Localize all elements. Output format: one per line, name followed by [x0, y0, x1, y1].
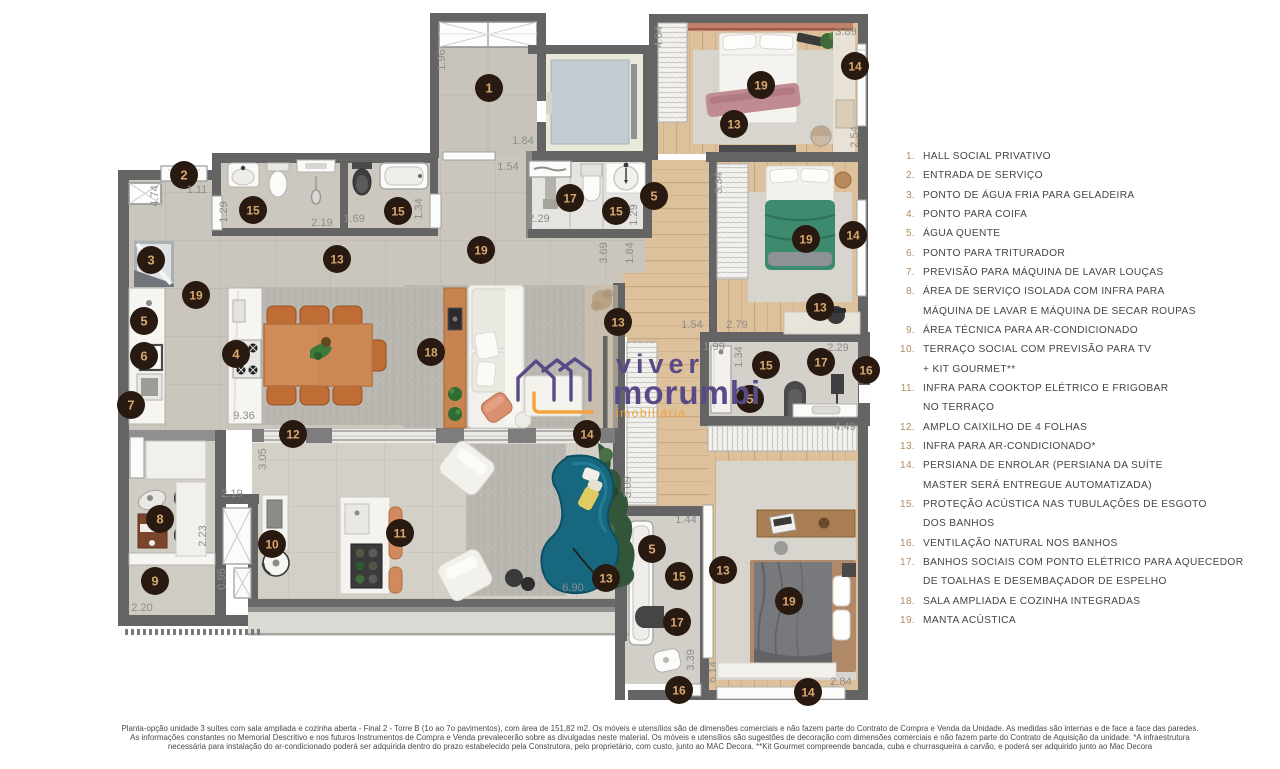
svg-text:15: 15 — [391, 205, 405, 219]
svg-text:14: 14 — [580, 428, 594, 442]
svg-text:1.34: 1.34 — [413, 198, 425, 219]
svg-text:19: 19 — [754, 79, 768, 93]
svg-text:2.19: 2.19 — [221, 488, 242, 500]
svg-text:8: 8 — [156, 512, 163, 527]
svg-text:2.19: 2.19 — [311, 217, 332, 229]
svg-text:2.23: 2.23 — [197, 525, 209, 546]
svg-text:9: 9 — [151, 574, 158, 589]
svg-text:4.49: 4.49 — [834, 421, 855, 433]
svg-text:1: 1 — [485, 81, 492, 96]
svg-text:19: 19 — [799, 233, 813, 247]
svg-text:4.04: 4.04 — [653, 26, 665, 47]
svg-text:19: 19 — [189, 289, 203, 303]
svg-text:13: 13 — [611, 316, 625, 330]
svg-text:3: 3 — [147, 253, 154, 268]
svg-text:6: 6 — [140, 349, 147, 364]
svg-text:3.39: 3.39 — [685, 649, 697, 670]
svg-text:1.34: 1.34 — [733, 346, 745, 367]
svg-text:5: 5 — [650, 189, 657, 204]
svg-text:10: 10 — [265, 538, 279, 552]
svg-text:1.29: 1.29 — [628, 204, 640, 225]
svg-text:0.95: 0.95 — [216, 568, 228, 589]
svg-text:3.89: 3.89 — [835, 26, 856, 38]
svg-text:2: 2 — [180, 168, 187, 183]
svg-text:17: 17 — [814, 356, 828, 370]
svg-text:15: 15 — [246, 204, 260, 218]
svg-text:17: 17 — [563, 192, 577, 206]
svg-text:19: 19 — [782, 595, 796, 609]
svg-text:13: 13 — [727, 118, 741, 132]
svg-text:15: 15 — [609, 205, 623, 219]
svg-text:18: 18 — [424, 346, 438, 360]
svg-text:1.54: 1.54 — [681, 319, 702, 331]
svg-text:1.84: 1.84 — [512, 135, 533, 147]
svg-text:5: 5 — [140, 314, 147, 329]
svg-text:13: 13 — [330, 253, 344, 267]
svg-text:4: 4 — [232, 347, 240, 362]
svg-text:13: 13 — [813, 301, 827, 315]
svg-text:2.84: 2.84 — [830, 676, 851, 688]
svg-text:15: 15 — [759, 359, 773, 373]
svg-text:14: 14 — [848, 60, 862, 74]
svg-text:1.44: 1.44 — [675, 514, 696, 526]
svg-text:14: 14 — [846, 229, 860, 243]
svg-text:4.74: 4.74 — [149, 185, 161, 206]
svg-text:2.20: 2.20 — [131, 602, 152, 614]
svg-text:13: 13 — [599, 572, 613, 586]
svg-text:3.34: 3.34 — [713, 172, 725, 193]
svg-text:2.29: 2.29 — [827, 342, 848, 354]
svg-text:6.14: 6.14 — [707, 661, 719, 682]
svg-text:1.54: 1.54 — [497, 161, 518, 173]
svg-text:3.69: 3.69 — [598, 242, 610, 263]
svg-text:12: 12 — [286, 428, 300, 442]
svg-text:1.11: 1.11 — [187, 184, 208, 196]
svg-text:5: 5 — [648, 542, 655, 557]
svg-text:7: 7 — [127, 398, 134, 413]
svg-text:2.79: 2.79 — [726, 319, 747, 331]
svg-text:1.69: 1.69 — [343, 213, 364, 225]
svg-text:1.99: 1.99 — [703, 341, 724, 353]
svg-text:13: 13 — [716, 564, 730, 578]
svg-text:15: 15 — [672, 570, 686, 584]
svg-text:1.84: 1.84 — [624, 242, 636, 263]
svg-text:3.09: 3.09 — [622, 476, 634, 497]
svg-text:11: 11 — [394, 527, 407, 541]
svg-text:1.29: 1.29 — [218, 201, 230, 222]
svg-text:1.96: 1.96 — [436, 49, 448, 70]
svg-text:2.29: 2.29 — [528, 213, 549, 225]
svg-text:16: 16 — [859, 364, 873, 378]
svg-text:9.36: 9.36 — [233, 410, 254, 422]
svg-text:2.54: 2.54 — [849, 126, 861, 147]
svg-text:imobiliária: imobiliária — [616, 406, 687, 420]
svg-text:17: 17 — [670, 616, 684, 630]
svg-text:3.05: 3.05 — [257, 448, 269, 469]
svg-text:19: 19 — [474, 244, 488, 258]
svg-text:14: 14 — [801, 686, 815, 700]
svg-text:6.90: 6.90 — [562, 582, 583, 594]
svg-text:16: 16 — [672, 684, 686, 698]
